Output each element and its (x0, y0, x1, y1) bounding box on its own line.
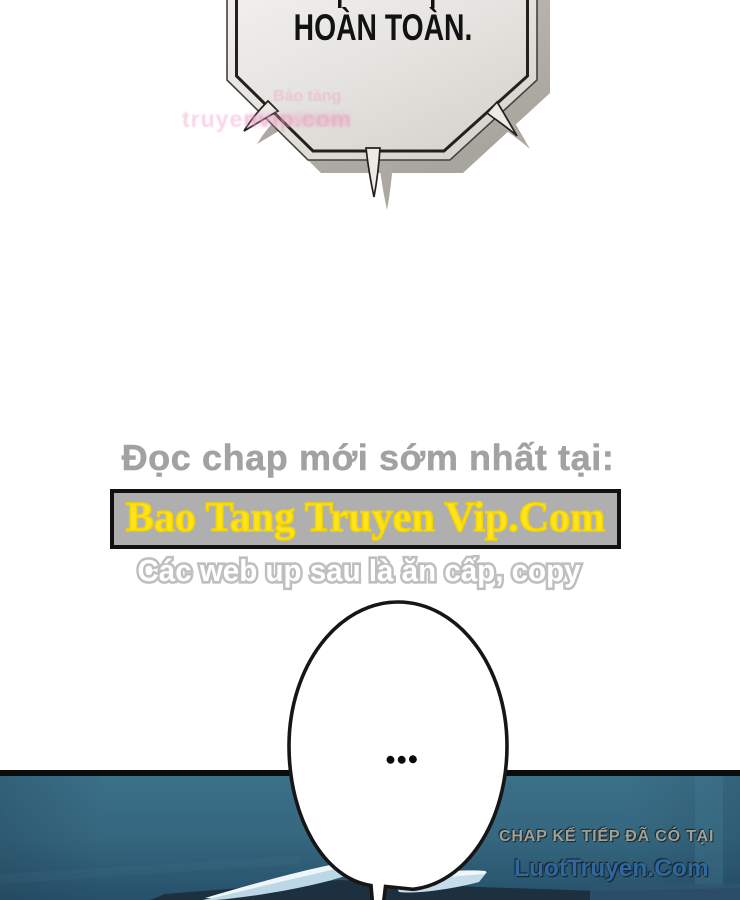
svg-text:Các web up sau là ăn cấp, copy: Các web up sau là ăn cấp, copy (137, 554, 580, 588)
svg-text:HOÀN TOÀN.: HOÀN TOÀN. (294, 6, 473, 48)
